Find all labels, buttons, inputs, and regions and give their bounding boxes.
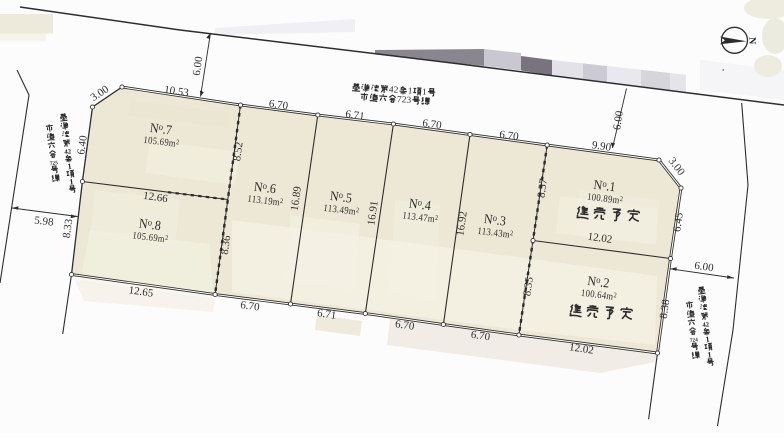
svg-text:5.98: 5.98: [34, 214, 55, 228]
svg-text:N: N: [746, 37, 757, 45]
